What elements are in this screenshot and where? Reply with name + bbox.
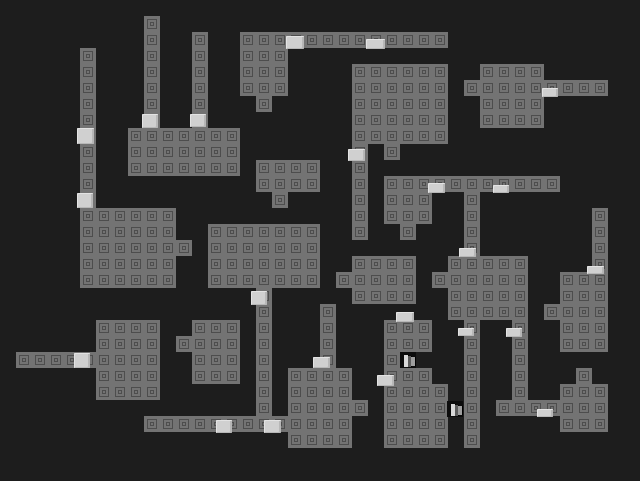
wall-tile	[384, 336, 400, 352]
wall-tile	[480, 112, 496, 128]
wall-tile	[208, 144, 224, 160]
wall-tile	[256, 384, 272, 400]
door-tile[interactable]	[537, 409, 553, 417]
wall-tile	[400, 432, 416, 448]
wall-tile	[128, 272, 144, 288]
wall-tile	[592, 384, 608, 400]
wall-tile	[544, 304, 560, 320]
wall-tile	[576, 304, 592, 320]
wall-tile	[80, 48, 96, 64]
wall-tile	[240, 224, 256, 240]
wall-tile	[160, 128, 176, 144]
wall-tile	[512, 352, 528, 368]
wall-tile	[288, 160, 304, 176]
wall-tile	[48, 352, 64, 368]
wall-tile	[224, 224, 240, 240]
wall-tile	[528, 96, 544, 112]
wall-tile	[80, 256, 96, 272]
door-tile[interactable]	[286, 36, 304, 49]
wall-tile	[272, 256, 288, 272]
wall-tile	[464, 432, 480, 448]
wall-tile	[400, 256, 416, 272]
wall-tile	[192, 336, 208, 352]
door-tile[interactable]	[396, 312, 414, 322]
wall-tile	[320, 432, 336, 448]
wall-tile	[400, 128, 416, 144]
wall-tile	[384, 384, 400, 400]
wall-tile	[400, 112, 416, 128]
wall-tile	[560, 400, 576, 416]
wall-tile	[416, 320, 432, 336]
wall-tile	[384, 256, 400, 272]
wall-tile	[496, 64, 512, 80]
wall-tile	[96, 272, 112, 288]
door-tile[interactable]	[458, 328, 474, 336]
wall-tile	[560, 304, 576, 320]
wall-tile	[80, 160, 96, 176]
wall-tile	[576, 80, 592, 96]
wall-tile	[208, 352, 224, 368]
wall-tile	[144, 208, 160, 224]
item-tile[interactable]	[400, 352, 416, 368]
wall-tile	[400, 96, 416, 112]
wall-tile	[368, 288, 384, 304]
wall-tile	[368, 256, 384, 272]
wall-tile	[576, 384, 592, 400]
wall-tile	[464, 304, 480, 320]
wall-tile	[224, 128, 240, 144]
wall-tile	[96, 352, 112, 368]
wall-tile	[352, 272, 368, 288]
wall-tile	[480, 96, 496, 112]
wall-tile	[592, 80, 608, 96]
wall-tile	[400, 400, 416, 416]
wall-tile	[480, 64, 496, 80]
wall-tile	[288, 416, 304, 432]
door-tile[interactable]	[264, 420, 281, 433]
wall-tile	[224, 160, 240, 176]
wall-tile	[400, 208, 416, 224]
wall-tile	[80, 208, 96, 224]
wall-tile	[320, 400, 336, 416]
wall-tile	[416, 32, 432, 48]
wall-tile	[144, 272, 160, 288]
door-tile[interactable]	[348, 149, 365, 161]
wall-tile	[224, 272, 240, 288]
wall-tile	[80, 224, 96, 240]
door-tile[interactable]	[313, 357, 330, 368]
wall-tile	[368, 128, 384, 144]
wall-tile	[192, 96, 208, 112]
wall-tile	[224, 240, 240, 256]
wall-tile	[112, 352, 128, 368]
wall-tile	[400, 384, 416, 400]
wall-tile	[592, 320, 608, 336]
wall-tile	[112, 224, 128, 240]
door-tile[interactable]	[493, 185, 509, 193]
wall-tile	[208, 336, 224, 352]
wall-tile	[128, 368, 144, 384]
wall-tile	[384, 352, 400, 368]
wall-tile	[464, 288, 480, 304]
wall-tile	[288, 272, 304, 288]
wall-tile	[384, 400, 400, 416]
door-tile[interactable]	[77, 193, 93, 208]
wall-tile	[448, 176, 464, 192]
wall-tile	[368, 80, 384, 96]
wall-tile	[496, 112, 512, 128]
door-tile[interactable]	[142, 114, 158, 128]
wall-tile	[96, 336, 112, 352]
wall-tile	[400, 320, 416, 336]
wall-tile	[112, 256, 128, 272]
item-bar-icon	[411, 357, 415, 366]
wall-tile	[352, 288, 368, 304]
wall-tile	[352, 80, 368, 96]
wall-tile	[480, 288, 496, 304]
wall-tile	[480, 80, 496, 96]
wall-tile	[464, 368, 480, 384]
wall-tile	[336, 32, 352, 48]
door-tile[interactable]	[428, 183, 445, 193]
wall-tile	[464, 208, 480, 224]
wall-tile	[144, 384, 160, 400]
wall-tile	[368, 272, 384, 288]
wall-tile	[432, 80, 448, 96]
wall-tile	[208, 224, 224, 240]
wall-tile	[192, 128, 208, 144]
wall-tile	[432, 112, 448, 128]
wall-tile	[336, 272, 352, 288]
wall-tile	[352, 176, 368, 192]
wall-tile	[384, 272, 400, 288]
wall-tile	[384, 320, 400, 336]
wall-tile	[240, 272, 256, 288]
wall-tile	[144, 48, 160, 64]
item-bar-icon	[458, 406, 462, 415]
wall-tile	[352, 96, 368, 112]
wall-tile	[512, 112, 528, 128]
wall-tile	[528, 112, 544, 128]
wall-tile	[384, 288, 400, 304]
wall-tile	[272, 192, 288, 208]
wall-tile	[96, 256, 112, 272]
wall-tile	[592, 416, 608, 432]
wall-tile	[512, 288, 528, 304]
wall-tile	[192, 64, 208, 80]
wall-tile	[192, 368, 208, 384]
wall-tile	[320, 336, 336, 352]
door-tile[interactable]	[459, 248, 476, 257]
wall-tile	[128, 240, 144, 256]
wall-tile	[96, 368, 112, 384]
wall-tile	[576, 416, 592, 432]
wall-tile	[384, 80, 400, 96]
wall-tile	[384, 64, 400, 80]
wall-tile	[512, 400, 528, 416]
wall-tile	[256, 304, 272, 320]
wall-tile	[432, 64, 448, 80]
wall-tile	[320, 416, 336, 432]
wall-tile	[272, 80, 288, 96]
wall-tile	[576, 320, 592, 336]
wall-tile	[352, 160, 368, 176]
wall-tile	[256, 256, 272, 272]
wall-tile	[192, 416, 208, 432]
wall-tile	[352, 224, 368, 240]
wall-tile	[288, 176, 304, 192]
wall-tile	[400, 64, 416, 80]
wall-tile	[144, 96, 160, 112]
wall-tile	[176, 160, 192, 176]
wall-tile	[432, 416, 448, 432]
wall-tile	[496, 96, 512, 112]
wall-tile	[432, 384, 448, 400]
wall-tile	[144, 256, 160, 272]
wall-tile	[416, 208, 432, 224]
wall-tile	[352, 128, 368, 144]
wall-tile	[464, 336, 480, 352]
wall-tile	[320, 368, 336, 384]
wall-tile	[576, 288, 592, 304]
wall-tile	[256, 320, 272, 336]
wall-tile	[288, 368, 304, 384]
wall-tile	[128, 384, 144, 400]
wall-tile	[560, 272, 576, 288]
wall-tile	[496, 288, 512, 304]
wall-tile	[272, 240, 288, 256]
wall-tile	[144, 64, 160, 80]
wall-tile	[80, 240, 96, 256]
wall-tile	[560, 336, 576, 352]
wall-tile	[592, 224, 608, 240]
wall-tile	[464, 176, 480, 192]
wall-tile	[448, 304, 464, 320]
wall-tile	[416, 128, 432, 144]
game-viewport[interactable]	[0, 0, 640, 481]
wall-tile	[336, 416, 352, 432]
wall-tile	[96, 240, 112, 256]
door-tile[interactable]	[74, 353, 90, 368]
wall-tile	[448, 272, 464, 288]
wall-tile	[400, 288, 416, 304]
wall-tile	[304, 256, 320, 272]
wall-tile	[464, 400, 480, 416]
wall-tile	[496, 400, 512, 416]
wall-tile	[432, 272, 448, 288]
wall-tile	[112, 240, 128, 256]
wall-tile	[208, 368, 224, 384]
wall-tile	[320, 320, 336, 336]
wall-tile	[256, 64, 272, 80]
wall-tile	[432, 432, 448, 448]
door-tile[interactable]	[251, 291, 267, 305]
wall-tile	[272, 176, 288, 192]
dungeon-map	[0, 0, 640, 481]
wall-tile	[96, 384, 112, 400]
wall-tile	[240, 256, 256, 272]
wall-tile	[240, 416, 256, 432]
wall-tile	[416, 432, 432, 448]
wall-tile	[144, 224, 160, 240]
door-tile[interactable]	[542, 88, 558, 97]
wall-tile	[256, 32, 272, 48]
wall-tile	[192, 144, 208, 160]
wall-tile	[96, 208, 112, 224]
wall-tile	[112, 368, 128, 384]
wall-tile	[256, 80, 272, 96]
wall-tile	[192, 32, 208, 48]
wall-tile	[320, 32, 336, 48]
wall-tile	[384, 416, 400, 432]
wall-tile	[480, 304, 496, 320]
door-tile[interactable]	[216, 420, 232, 433]
wall-tile	[464, 256, 480, 272]
wall-tile	[304, 432, 320, 448]
wall-tile	[144, 320, 160, 336]
wall-tile	[304, 368, 320, 384]
wall-tile	[256, 160, 272, 176]
wall-tile	[464, 352, 480, 368]
wall-tile	[384, 128, 400, 144]
wall-tile	[512, 96, 528, 112]
door-tile[interactable]	[506, 328, 522, 337]
wall-tile	[512, 256, 528, 272]
wall-tile	[512, 64, 528, 80]
wall-tile	[416, 368, 432, 384]
wall-tile	[176, 336, 192, 352]
wall-tile	[576, 272, 592, 288]
wall-tile	[512, 368, 528, 384]
wall-tile	[512, 80, 528, 96]
wall-tile	[304, 160, 320, 176]
wall-tile	[288, 224, 304, 240]
wall-tile	[304, 416, 320, 432]
wall-tile	[576, 336, 592, 352]
wall-tile	[224, 368, 240, 384]
door-tile[interactable]	[377, 375, 394, 386]
wall-tile	[208, 240, 224, 256]
wall-tile	[160, 224, 176, 240]
wall-tile	[512, 336, 528, 352]
wall-tile	[288, 240, 304, 256]
wall-tile	[384, 96, 400, 112]
wall-tile	[592, 288, 608, 304]
wall-tile	[224, 144, 240, 160]
wall-tile	[176, 128, 192, 144]
wall-tile	[560, 80, 576, 96]
wall-tile	[496, 256, 512, 272]
wall-tile	[432, 32, 448, 48]
wall-tile	[208, 128, 224, 144]
wall-tile	[320, 384, 336, 400]
wall-tile	[560, 416, 576, 432]
wall-tile	[208, 272, 224, 288]
door-tile[interactable]	[190, 114, 206, 127]
wall-tile	[144, 336, 160, 352]
wall-tile	[416, 96, 432, 112]
wall-tile	[592, 208, 608, 224]
door-tile[interactable]	[587, 266, 604, 274]
door-tile[interactable]	[366, 39, 385, 49]
wall-tile	[400, 272, 416, 288]
wall-tile	[80, 176, 96, 192]
wall-tile	[256, 336, 272, 352]
wall-tile	[288, 256, 304, 272]
wall-tile	[400, 336, 416, 352]
wall-tile	[528, 176, 544, 192]
wall-tile	[336, 368, 352, 384]
wall-tile	[304, 400, 320, 416]
wall-tile	[128, 320, 144, 336]
wall-tile	[128, 144, 144, 160]
wall-tile	[352, 64, 368, 80]
wall-tile	[144, 368, 160, 384]
wall-tile	[256, 176, 272, 192]
wall-tile	[560, 288, 576, 304]
wall-tile	[272, 64, 288, 80]
wall-tile	[272, 160, 288, 176]
wall-tile	[80, 144, 96, 160]
wall-tile	[416, 416, 432, 432]
wall-tile	[352, 192, 368, 208]
wall-tile	[400, 224, 416, 240]
wall-tile	[96, 224, 112, 240]
wall-tile	[144, 160, 160, 176]
wall-tile	[416, 64, 432, 80]
wall-tile	[224, 320, 240, 336]
wall-tile	[512, 272, 528, 288]
wall-tile	[176, 416, 192, 432]
wall-tile	[464, 416, 480, 432]
wall-tile	[560, 384, 576, 400]
item-tile[interactable]	[447, 401, 463, 417]
wall-tile	[240, 32, 256, 48]
wall-tile	[352, 400, 368, 416]
wall-tile	[464, 272, 480, 288]
wall-tile	[416, 192, 432, 208]
wall-tile	[592, 304, 608, 320]
wall-tile	[288, 432, 304, 448]
wall-tile	[256, 352, 272, 368]
wall-tile	[416, 112, 432, 128]
wall-tile	[592, 336, 608, 352]
wall-tile	[352, 256, 368, 272]
wall-tile	[192, 48, 208, 64]
wall-tile	[112, 336, 128, 352]
wall-tile	[256, 48, 272, 64]
wall-tile	[272, 224, 288, 240]
wall-tile	[80, 80, 96, 96]
door-tile[interactable]	[77, 128, 94, 144]
wall-tile	[80, 64, 96, 80]
wall-tile	[208, 160, 224, 176]
wall-tile	[176, 240, 192, 256]
wall-tile	[240, 48, 256, 64]
wall-tile	[112, 208, 128, 224]
wall-tile	[144, 128, 160, 144]
wall-tile	[464, 80, 480, 96]
wall-tile	[288, 384, 304, 400]
wall-tile	[576, 400, 592, 416]
wall-tile	[128, 336, 144, 352]
wall-tile	[160, 256, 176, 272]
wall-tile	[16, 352, 32, 368]
wall-tile	[416, 384, 432, 400]
wall-tile	[512, 304, 528, 320]
wall-tile	[192, 320, 208, 336]
wall-tile	[224, 256, 240, 272]
